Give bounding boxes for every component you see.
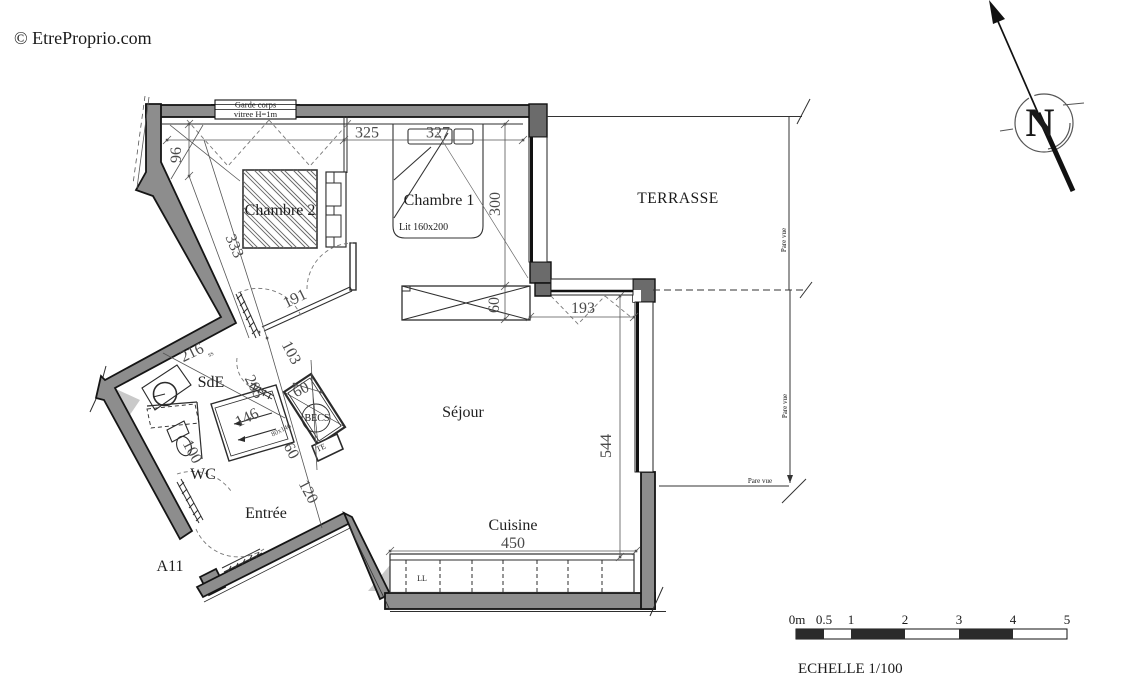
svg-text:60: 60 bbox=[486, 297, 503, 313]
svg-text:Pare vue: Pare vue bbox=[781, 394, 789, 418]
svg-text:A11: A11 bbox=[157, 558, 184, 575]
svg-text:Chambre 2: Chambre 2 bbox=[245, 202, 316, 219]
svg-text:3: 3 bbox=[956, 612, 963, 627]
svg-text:300: 300 bbox=[487, 192, 504, 216]
svg-text:SdE: SdE bbox=[198, 374, 225, 391]
svg-text:Garde corps: Garde corps bbox=[235, 100, 276, 110]
svg-text:LL: LL bbox=[417, 574, 427, 583]
svg-text:5: 5 bbox=[1064, 612, 1071, 627]
svg-text:© EtreProprio.com: © EtreProprio.com bbox=[14, 28, 152, 48]
svg-text:N: N bbox=[1026, 100, 1055, 145]
svg-text:96: 96 bbox=[168, 147, 185, 163]
svg-text:0.5: 0.5 bbox=[816, 612, 832, 627]
svg-text:Pare vue: Pare vue bbox=[748, 477, 772, 485]
svg-text:Séjour: Séjour bbox=[442, 404, 484, 421]
svg-text:325: 325 bbox=[355, 125, 379, 142]
svg-text:Entrée: Entrée bbox=[245, 505, 287, 522]
svg-text:327: 327 bbox=[426, 125, 450, 142]
svg-text:Lit 160x200: Lit 160x200 bbox=[399, 222, 448, 233]
svg-text:1: 1 bbox=[848, 612, 855, 627]
svg-text:Cuisine: Cuisine bbox=[489, 517, 538, 534]
svg-text:Pare vue: Pare vue bbox=[780, 228, 788, 252]
svg-text:Chambre 1: Chambre 1 bbox=[404, 192, 475, 209]
svg-text:4: 4 bbox=[1010, 612, 1017, 627]
svg-text:vitree H=1m: vitree H=1m bbox=[234, 109, 278, 119]
svg-text:TERRASSE: TERRASSE bbox=[637, 190, 719, 207]
svg-text:WC: WC bbox=[190, 466, 216, 483]
svg-text:2: 2 bbox=[902, 612, 909, 627]
svg-text:544: 544 bbox=[598, 434, 615, 458]
svg-text:450: 450 bbox=[501, 535, 525, 552]
svg-text:ECHELLE 1/100: ECHELLE 1/100 bbox=[798, 661, 903, 677]
svg-text:BECS: BECS bbox=[304, 413, 329, 424]
svg-text:193: 193 bbox=[571, 300, 595, 317]
svg-text:0m: 0m bbox=[789, 612, 806, 627]
